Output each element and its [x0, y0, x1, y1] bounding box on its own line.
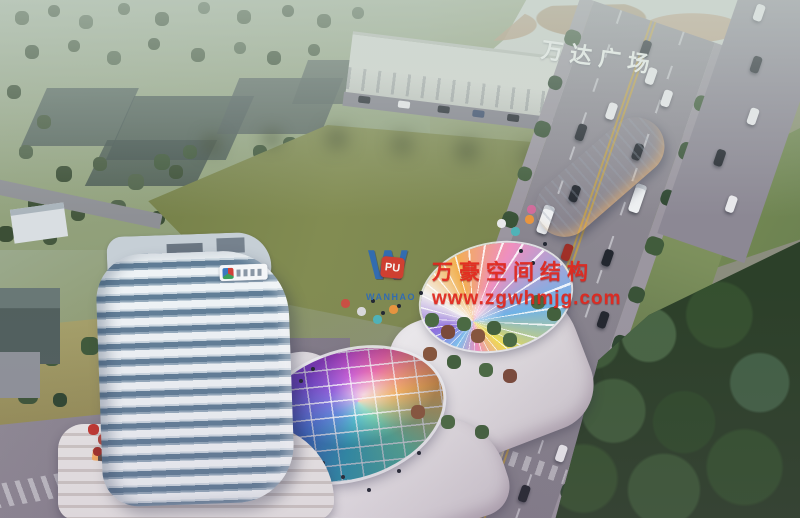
podium-red-umbrellas: [58, 424, 61, 427]
car: [713, 148, 727, 167]
parked-car: [358, 96, 371, 104]
tower-logo: [219, 264, 268, 282]
car: [554, 444, 568, 463]
watermark-logo-name: WANHAO: [366, 292, 416, 302]
tower-balcony-bands: [95, 249, 296, 508]
tower-logo-glyphs: [236, 268, 262, 276]
car: [596, 310, 610, 329]
residential-tower: [90, 222, 310, 518]
watermark-website: www.zgwhmjg.com: [432, 288, 622, 310]
tower-logo-emblem: [222, 267, 233, 278]
parked-car: [398, 100, 411, 108]
car: [574, 123, 588, 142]
lawn-tree-shadows: [150, 128, 154, 132]
car: [746, 107, 760, 126]
watermark-company-name: 万豪空间结构: [432, 256, 622, 286]
parked-car: [507, 114, 520, 122]
car: [724, 195, 738, 214]
watermark-logo: W PU WANHAO: [368, 250, 424, 304]
aerial-render-scene: 万达广场 W PU WANHAO 万豪空间结构 www.zgwhmjg.com: [0, 0, 800, 518]
watermark-text: 万豪空间结构 www.zgwhmjg.com: [432, 250, 622, 310]
parked-car: [472, 110, 485, 118]
car: [752, 3, 766, 22]
gray-building: [0, 352, 40, 398]
district-building: [85, 140, 217, 186]
pedestrians: [0, 0, 2, 2]
car: [749, 55, 763, 74]
parked-car: [437, 105, 450, 113]
car: [517, 484, 531, 503]
watermark-logo-badge: PU: [380, 256, 405, 279]
watermark: W PU WANHAO 万豪空间结构 www.zgwhmjg.com: [368, 250, 622, 310]
